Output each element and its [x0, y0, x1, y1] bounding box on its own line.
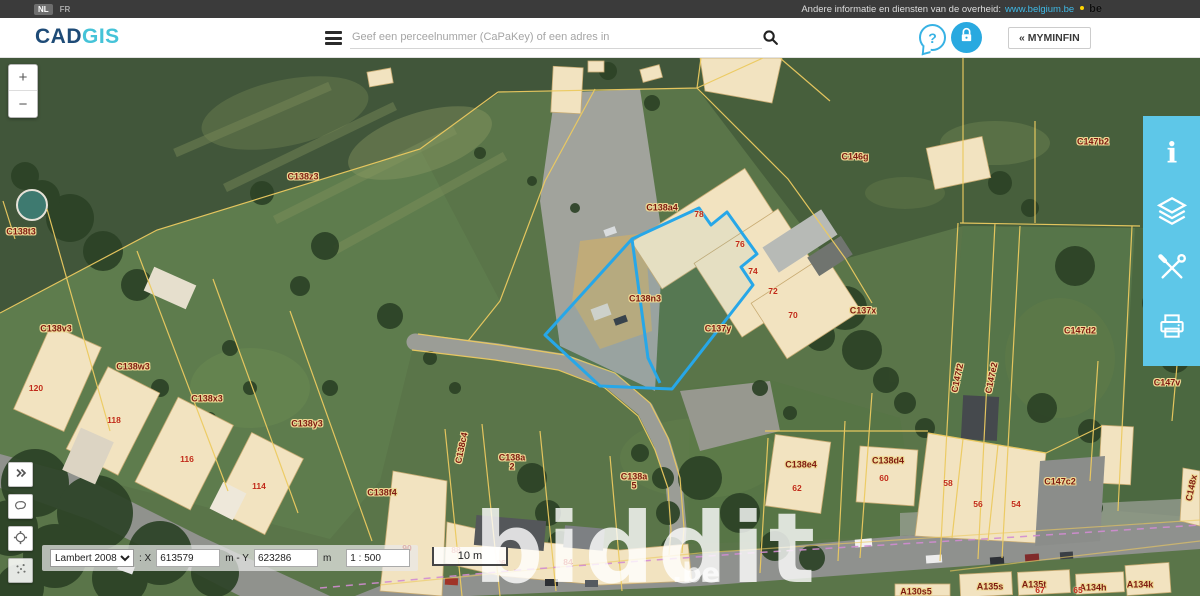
points-button[interactable] — [8, 558, 33, 583]
layers-button[interactable] — [1152, 192, 1192, 232]
coordinate-bar: Lambert 2008 : X m - Y m — [42, 545, 418, 571]
myminfin-button[interactable]: « MYMINFIN — [1008, 27, 1091, 49]
layers-icon — [1155, 194, 1189, 231]
xy-separator-label: m - Y — [225, 553, 249, 564]
zoom-out-button[interactable]: − — [9, 91, 37, 117]
chevrons-right-icon — [14, 466, 28, 483]
government-info-text: Andere informatie en diensten van de ove… — [801, 4, 1001, 15]
map-tool-buttons — [8, 462, 33, 583]
unit-label: m — [323, 553, 331, 564]
cadgis-logo[interactable]: CADGIS — [35, 25, 120, 49]
x-coordinate-label: : X — [139, 553, 151, 564]
search-input[interactable] — [350, 24, 762, 49]
logo-gis-part: GIS — [82, 25, 120, 48]
language-fr-button[interactable]: FR — [60, 5, 71, 14]
map-side-toolbar: i — [1143, 116, 1200, 366]
lasso-select-button[interactable] — [8, 494, 33, 519]
expand-panel-button[interactable] — [8, 462, 33, 487]
government-info: Andere informatie en diensten van de ove… — [801, 3, 1102, 15]
tools-button[interactable] — [1152, 250, 1192, 290]
locate-button[interactable] — [8, 526, 33, 551]
info-icon: i — [1156, 137, 1188, 172]
search-icon[interactable] — [762, 29, 779, 51]
zoom-in-button[interactable]: + — [9, 65, 37, 91]
svg-text:i: i — [1166, 137, 1177, 169]
help-button[interactable]: ? — [919, 24, 946, 51]
x-coordinate-input[interactable] — [156, 549, 220, 567]
government-topbar: NL FR Andere informatie en diensten van … — [0, 0, 1200, 18]
aerial-imagery[interactable] — [0, 58, 1200, 596]
info-button[interactable]: i — [1152, 135, 1192, 175]
logo-cad-part: CAD — [35, 25, 82, 48]
tools-icon — [1156, 252, 1188, 287]
scale-ratio-input[interactable] — [346, 549, 410, 567]
belgium-be-logo: be — [1089, 3, 1102, 15]
projection-select[interactable]: Lambert 2008 — [50, 549, 134, 567]
login-lock-button[interactable] — [951, 22, 982, 53]
points-icon — [14, 562, 28, 579]
language-nl-button[interactable]: NL — [34, 4, 53, 15]
print-button[interactable] — [1152, 307, 1192, 347]
lock-icon — [959, 27, 974, 49]
belgium-be-link[interactable]: www.belgium.be — [1005, 4, 1074, 15]
y-coordinate-input[interactable] — [254, 549, 318, 567]
crosshair-icon — [13, 530, 28, 548]
scale-bar: 10 m — [432, 547, 508, 566]
menu-icon[interactable] — [325, 31, 342, 48]
map-viewport[interactable]: C138t3C138z3C146gC147b2C138a4C138n3C137y… — [0, 58, 1200, 596]
lasso-icon — [13, 498, 28, 516]
search-field-wrap — [350, 24, 762, 49]
print-icon — [1156, 310, 1188, 345]
belgium-be-logo-dot — [1080, 6, 1084, 10]
app-header: CADGIS ? « MYMINFIN — [0, 18, 1200, 58]
zoom-control: + − — [8, 64, 38, 118]
